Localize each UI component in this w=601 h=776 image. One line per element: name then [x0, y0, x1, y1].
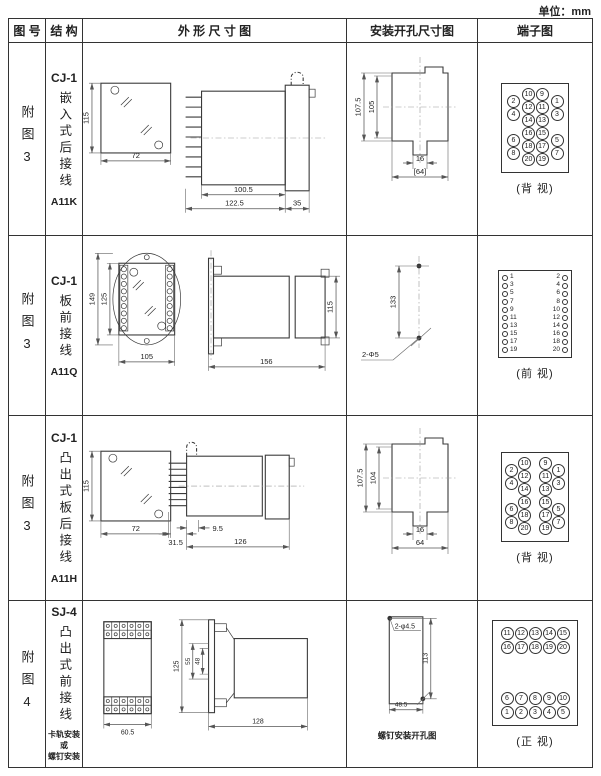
- terminal: 11: [501, 627, 514, 640]
- terminal: 8: [507, 147, 520, 160]
- terminal-pin-icon: [562, 275, 568, 281]
- structure-text: 板前接线: [58, 294, 71, 360]
- terminal: 19: [543, 641, 556, 654]
- terminal: 8: [505, 516, 518, 529]
- terminal: 17: [539, 509, 552, 522]
- terminal: 8: [529, 692, 542, 705]
- terminal: 9: [539, 457, 552, 470]
- structure-text: 凸出式板后接线: [58, 451, 71, 567]
- dim-label: 104: [369, 472, 378, 485]
- terminal-number: 9: [510, 307, 514, 314]
- dim-label: 128: [252, 718, 264, 725]
- mount-line: 螺钉安装: [48, 752, 80, 761]
- dim-label: 115: [326, 301, 335, 313]
- hole-spec-label: 2-Φ5: [362, 350, 379, 359]
- terminal-cell-r1: 10 12 14 16 18 20 9 11 13 15 17 19 2 4 6…: [478, 43, 592, 236]
- terminal-number: 5: [510, 290, 514, 297]
- dim-label: 115: [83, 480, 90, 492]
- fig-no-r3: 附图3: [9, 416, 46, 601]
- terminal: 13: [539, 483, 552, 496]
- terminal-number: 1: [510, 274, 514, 281]
- terminal: 18: [518, 509, 531, 522]
- outline-drawing-sj4: 60.5 125 55 48 128: [83, 602, 346, 767]
- install-cell-r3: 107.5 104 16 64: [347, 416, 478, 601]
- dim-label: 60.5: [121, 729, 135, 736]
- terminal-row: 1920: [502, 347, 568, 354]
- unit-label: 单位：mm: [538, 3, 591, 19]
- terminal-pin-icon: [502, 339, 508, 345]
- terminal-row: 910: [502, 306, 568, 313]
- fig-no-r1: 附图3: [9, 43, 46, 236]
- header-fig-no: 图 号: [9, 19, 46, 43]
- dim-label: 72: [132, 151, 140, 160]
- terminal-row: 78: [502, 298, 568, 305]
- terminal: 16: [522, 127, 535, 140]
- structure-r3: CJ-1 凸出式板后接线 A11H: [46, 416, 83, 601]
- terminal-pin-icon: [562, 339, 568, 345]
- terminal-pin-icon: [562, 331, 568, 337]
- terminal-pin-icon: [502, 331, 508, 337]
- hole-spec-label: 2-φ4.5: [395, 623, 415, 630]
- dim-label: 122.5: [225, 199, 244, 208]
- terminal: 20: [522, 153, 535, 166]
- dim-label: 149: [87, 293, 96, 305]
- dim-label: 9.5: [213, 524, 223, 533]
- terminal-cell-r4: 11 12 13 14 15 16 17 18 19 20 6 7 8: [478, 601, 592, 767]
- header-install: 安装开孔尺寸图: [347, 19, 478, 43]
- dim-label: 125: [173, 660, 180, 672]
- terminal-row: 12: [502, 274, 568, 281]
- install-caption: 螺钉安装开孔图: [378, 730, 437, 740]
- terminal-view-label: (背 视): [516, 549, 553, 565]
- terminal: 18: [529, 641, 542, 654]
- terminal: 4: [507, 108, 520, 121]
- terminal: 13: [529, 627, 542, 640]
- dim-label: 126: [234, 537, 246, 546]
- terminal: 4: [505, 477, 518, 490]
- terminal-cell-r2: 12 34 56 78 910 1112 1314 1516 1718 1920…: [478, 236, 592, 416]
- terminal-pin-icon: [502, 299, 508, 305]
- dim-label: [64]: [414, 167, 427, 176]
- terminal-pin-icon: [502, 291, 508, 297]
- terminal-pin-icon: [562, 299, 568, 305]
- document-page: 单位：mm 图 号 结 构 外 形 尺 寸 图 安装开孔尺寸图 端子图 附图3 …: [0, 0, 601, 776]
- terminal-row: 6 7 8 9 10: [501, 692, 570, 705]
- install-drawing-a11q: 133 2-Φ5: [347, 236, 477, 415]
- terminal: 16: [501, 641, 514, 654]
- header-terminal: 端子图: [478, 19, 592, 43]
- model-code: A11H: [51, 573, 77, 585]
- terminal: 17: [515, 641, 528, 654]
- header-structure: 结 构: [46, 19, 83, 43]
- terminal: 17: [536, 140, 549, 153]
- terminal: 5: [557, 706, 570, 719]
- fig-no-text: 附图3: [21, 474, 34, 542]
- terminal-box-rear-view: 10 12 14 16 18 20 9 11 13 15 17 19 2 4 6…: [501, 452, 569, 542]
- terminal: 20: [557, 641, 570, 654]
- install-drawing-sj4: 2-φ4.5 113 48.5 螺钉安装开孔图: [347, 602, 477, 767]
- terminal-number: 4: [556, 282, 560, 289]
- terminal: 5: [551, 134, 564, 147]
- terminal-row: 11 12 13 14 15: [501, 627, 570, 640]
- terminal: 14: [518, 483, 531, 496]
- terminal: 7: [551, 147, 564, 160]
- fig-no-r2: 附图3: [9, 236, 46, 416]
- terminal-number: 19: [510, 347, 517, 354]
- terminal: 16: [518, 496, 531, 509]
- terminal: 7: [552, 516, 565, 529]
- dim-label: 31.5: [168, 538, 183, 547]
- terminal-pin-icon: [562, 315, 568, 321]
- dim-label: 105: [367, 101, 376, 114]
- terminal: 14: [543, 627, 556, 640]
- dim-label: 48.5: [395, 701, 408, 708]
- outline-drawing-a11h: 115 72 9.5 31.5 126: [83, 416, 346, 600]
- model-label: CJ-1: [51, 274, 77, 288]
- terminal-number: 15: [510, 331, 517, 338]
- terminal-row: 1516: [502, 331, 568, 338]
- terminal: 20: [518, 522, 531, 535]
- install-cell-r4: 2-φ4.5 113 48.5 螺钉安装开孔图: [347, 601, 478, 767]
- terminal-number: 10: [553, 307, 560, 314]
- terminal: 1: [552, 464, 565, 477]
- terminal: 15: [536, 127, 549, 140]
- terminal-number: 14: [553, 323, 560, 330]
- structure-r2: CJ-1 板前接线 A11Q: [46, 236, 83, 416]
- drawing-table: 图 号 结 构 外 形 尺 寸 图 安装开孔尺寸图 端子图 附图3 CJ-1 嵌…: [8, 18, 593, 768]
- terminal-pin-icon: [562, 307, 568, 313]
- terminal: 2: [515, 706, 528, 719]
- terminal: 10: [522, 88, 535, 101]
- header-outline: 外 形 尺 寸 图: [83, 19, 347, 43]
- structure-text: 凸出式前接线: [58, 625, 71, 724]
- terminal: 14: [522, 114, 535, 127]
- terminal: 6: [507, 134, 520, 147]
- terminal: 10: [557, 692, 570, 705]
- outline-cell-r1: 115 72 100.5 122.5 35: [83, 43, 347, 236]
- dim-label: 156: [260, 357, 272, 366]
- terminal-pin-icon: [562, 323, 568, 329]
- terminal-pin-icon: [502, 307, 508, 313]
- model-code: A11K: [51, 196, 77, 208]
- terminal: 3: [529, 706, 542, 719]
- terminal-view-label: (背 视): [516, 180, 553, 196]
- terminal-cell-r3: 10 12 14 16 18 20 9 11 13 15 17 19 2 4 6…: [478, 416, 592, 601]
- dim-label: 107.5: [354, 98, 363, 117]
- outline-drawing-a11k: 115 72 100.5 122.5 35: [83, 43, 346, 235]
- install-drawing-a11k: 107.5 105 16 [64]: [347, 43, 477, 235]
- dim-label: 16: [416, 525, 424, 534]
- terminal: 10: [518, 457, 531, 470]
- terminal: 19: [539, 522, 552, 535]
- terminal-pin-icon: [502, 323, 508, 329]
- terminal: 6: [505, 503, 518, 516]
- terminal: 4: [543, 706, 556, 719]
- dim-label: 55: [185, 657, 192, 665]
- mount-type-label: 卡轨安装 或 螺钉安装: [48, 730, 80, 762]
- terminal: 12: [522, 101, 535, 114]
- terminal-pin-icon: [502, 315, 508, 321]
- terminal-row: 56: [502, 290, 568, 297]
- terminal-number: 16: [553, 331, 560, 338]
- dim-label: 115: [83, 112, 90, 124]
- terminal-row: 1314: [502, 323, 568, 330]
- install-cell-r2: 133 2-Φ5: [347, 236, 478, 416]
- terminal-pin-icon: [502, 283, 508, 289]
- fig-no-text: 附图4: [21, 650, 34, 718]
- structure-text: 嵌入式后接线: [58, 91, 71, 190]
- terminal-row: 34: [502, 282, 568, 289]
- dim-label: 64: [416, 538, 424, 547]
- terminal-pin-icon: [562, 347, 568, 353]
- terminal-number: 13: [510, 323, 517, 330]
- terminal: 1: [501, 706, 514, 719]
- structure-r1: CJ-1 嵌入式后接线 A11K: [46, 43, 83, 236]
- terminal-number: 2: [556, 274, 560, 281]
- fig-no-text: 附图3: [21, 292, 34, 360]
- model-label: CJ-1: [51, 431, 77, 445]
- terminal-number: 3: [510, 282, 514, 289]
- terminal-row: 1112: [502, 315, 568, 322]
- model-label: SJ-4: [51, 605, 76, 619]
- terminal: 1: [551, 95, 564, 108]
- terminal: 18: [522, 140, 535, 153]
- model-code: A11Q: [51, 366, 78, 378]
- terminal: 12: [518, 470, 531, 483]
- terminal-row: 1718: [502, 339, 568, 346]
- dim-label: 35: [293, 199, 301, 208]
- outline-cell-r4: 60.5 125 55 48 128: [83, 601, 347, 767]
- install-drawing-a11h: 107.5 104 16 64: [347, 416, 477, 600]
- terminal-number: 20: [553, 347, 560, 354]
- dim-label: 113: [422, 652, 429, 663]
- outline-cell-r2: 149 125 105 115 156: [83, 236, 347, 416]
- outline-cell-r3: 115 72 9.5 31.5 126: [83, 416, 347, 601]
- terminal: 2: [505, 464, 518, 477]
- terminal: 19: [536, 153, 549, 166]
- terminal-box-front-view: 12 34 56 78 910 1112 1314 1516 1718 1920: [498, 270, 572, 358]
- terminal-number: 6: [556, 290, 560, 297]
- terminal: 9: [543, 692, 556, 705]
- terminal-number: 11: [510, 315, 517, 322]
- dim-label: 105: [141, 352, 153, 361]
- terminal-number: 8: [556, 299, 560, 306]
- terminal-pin-icon: [562, 291, 568, 297]
- terminal: 2: [507, 95, 520, 108]
- terminal-number: 18: [553, 339, 560, 346]
- terminal: 3: [551, 108, 564, 121]
- terminal: 11: [536, 101, 549, 114]
- terminal-row: 1 2 3 4 5: [501, 706, 570, 719]
- terminal: 9: [536, 88, 549, 101]
- terminal: 15: [557, 627, 570, 640]
- terminal: 11: [539, 470, 552, 483]
- terminal: 3: [552, 477, 565, 490]
- dim-label: 100.5: [234, 185, 253, 194]
- terminal-row: 16 17 18 19 20: [501, 641, 570, 654]
- terminal-view-label: (前 视): [516, 365, 553, 381]
- dim-label: 16: [416, 154, 424, 163]
- terminal-number: 12: [553, 315, 560, 322]
- install-cell-r1: 107.5 105 16 [64]: [347, 43, 478, 236]
- outline-drawing-a11q: 149 125 105 115 156: [83, 236, 346, 415]
- terminal-pin-icon: [562, 283, 568, 289]
- terminal: 12: [515, 627, 528, 640]
- terminal: 7: [515, 692, 528, 705]
- terminal-pin-icon: [502, 347, 508, 353]
- terminal-view-label: (正 视): [516, 733, 553, 749]
- mount-line: 或: [60, 741, 68, 750]
- terminal-box-rear-view: 10 12 14 16 18 20 9 11 13 15 17 19 2 4 6…: [501, 83, 569, 173]
- dim-label: 133: [389, 296, 398, 309]
- dim-label: 72: [132, 524, 140, 533]
- terminal: 6: [501, 692, 514, 705]
- terminal-box-front-view: 11 12 13 14 15 16 17 18 19 20 6 7 8: [492, 620, 578, 726]
- fig-no-text: 附图3: [21, 105, 34, 173]
- dim-label: 48: [195, 657, 202, 665]
- terminal-number: 7: [510, 299, 514, 306]
- dim-label: 125: [99, 293, 108, 305]
- model-label: CJ-1: [51, 71, 77, 85]
- terminal: 5: [552, 503, 565, 516]
- terminal: 13: [536, 114, 549, 127]
- terminal-number: 17: [510, 339, 517, 346]
- terminal-pin-icon: [502, 275, 508, 281]
- dim-label: 107.5: [356, 469, 365, 488]
- mount-line: 卡轨安装: [48, 730, 80, 739]
- fig-no-r4: 附图4: [9, 601, 46, 767]
- structure-r4: SJ-4 凸出式前接线 卡轨安装 或 螺钉安装: [46, 601, 83, 767]
- terminal: 15: [539, 496, 552, 509]
